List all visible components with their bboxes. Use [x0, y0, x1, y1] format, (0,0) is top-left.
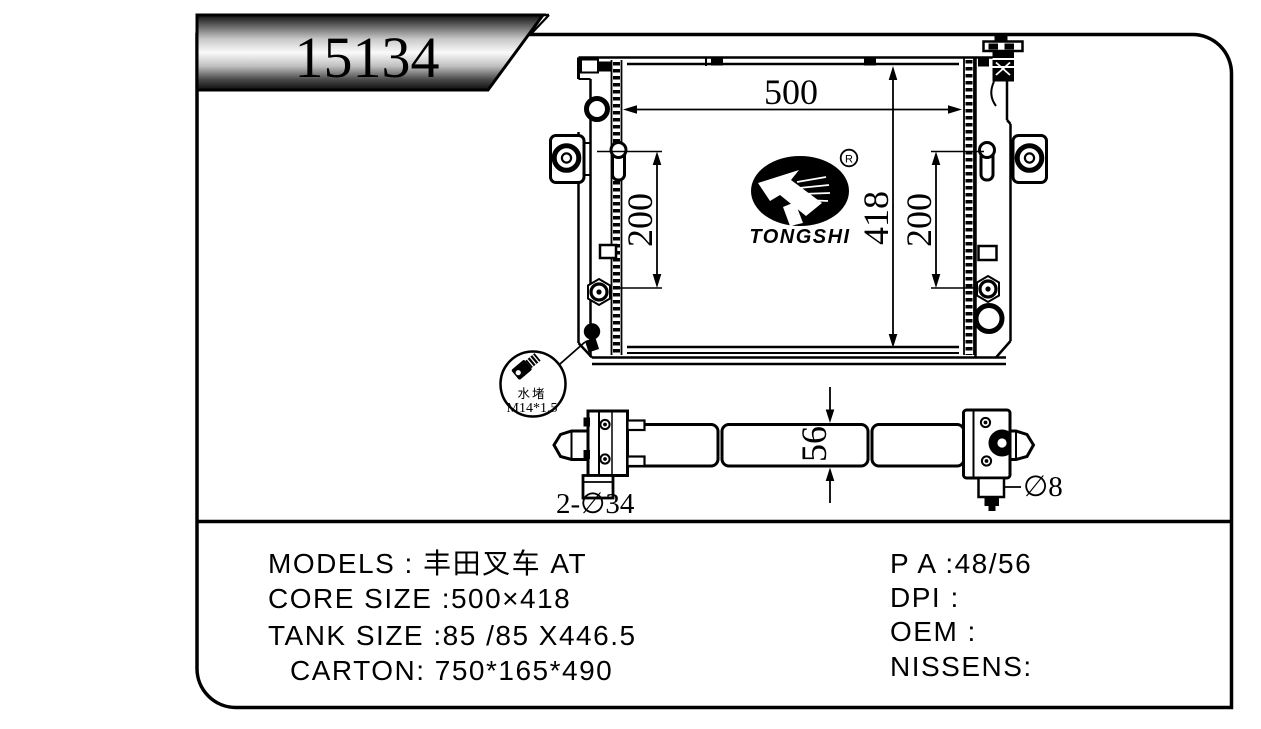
- spec-oem: OEM :: [890, 616, 977, 647]
- spec-models: MODELS : 丰田叉车 AT: [268, 548, 587, 579]
- thickness-dim-label: 56: [794, 426, 834, 462]
- radiator-drawing-sheet: 500 418 200 200 R TONGSHI: [0, 0, 1261, 729]
- part-number: 15134: [295, 25, 440, 90]
- spec-nissens: NISSENS:: [890, 651, 1033, 682]
- right-slot: [979, 246, 997, 260]
- spec-dpi: DPI :: [890, 582, 960, 613]
- height-dim-label: 418: [856, 191, 896, 245]
- drawing-svg: 500 418 200 200 R TONGSHI: [0, 0, 1261, 729]
- pipe-holes-label: 2-∅34: [556, 488, 635, 520]
- left-top-hole: [587, 99, 608, 120]
- brand-name: TONGSHI: [749, 226, 850, 248]
- right-hex-bolt: [977, 276, 999, 302]
- left-keyhole: [611, 143, 626, 158]
- detail-thread-spec: M14*1.5: [507, 401, 558, 416]
- tube-clip: [711, 57, 723, 66]
- tube-clip: [864, 57, 876, 66]
- width-dim-label: 500: [764, 72, 818, 112]
- spec-pa: P A :48/56: [890, 548, 1032, 579]
- part-number-banner: 15134: [197, 15, 549, 90]
- spec-carton: CARTON: 750*165*490: [290, 655, 613, 686]
- left-pitch-dim-label: 200: [620, 193, 660, 247]
- detail-name-cn: 水堵: [517, 387, 546, 401]
- right-lower-ring: [976, 306, 1002, 332]
- right-keyhole: [980, 143, 995, 158]
- right-pitch-dim-label: 200: [899, 193, 939, 247]
- left-slot: [600, 245, 616, 258]
- spec-core-size: CORE SIZE :500×418: [268, 583, 571, 614]
- right-mount-bracket: [1013, 136, 1047, 183]
- registered-mark-letter: R: [845, 154, 853, 166]
- spec-tank-size: TANK SIZE :85 /85 X446.5: [268, 620, 637, 651]
- pin-hole-label: ∅8: [1023, 471, 1063, 503]
- left-mount-bracket: [551, 136, 591, 183]
- left-hex-bolt: [588, 279, 610, 305]
